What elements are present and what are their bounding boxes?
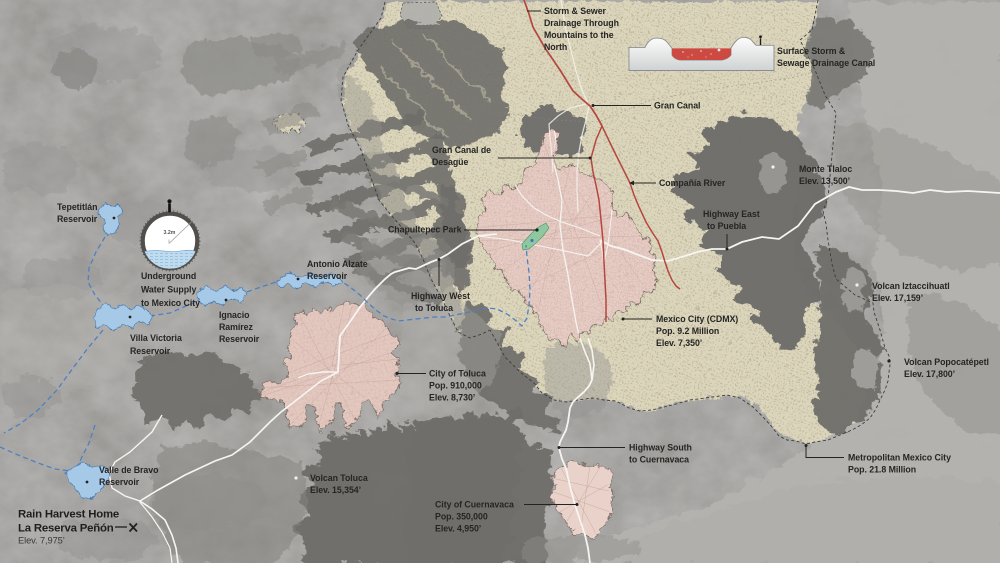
svg-text:Pop. 9.2 Million: Pop. 9.2 Million (656, 326, 719, 336)
svg-text:Reservoir: Reservoir (219, 334, 260, 344)
svg-text:Reservoir: Reservoir (57, 214, 98, 224)
svg-text:Gran Canal: Gran Canal (654, 101, 700, 111)
svg-text:Mountains to the: Mountains to the (544, 30, 614, 40)
svg-text:Elev. 8,730’: Elev. 8,730’ (429, 393, 475, 403)
svg-text:Pop. 910,000: Pop. 910,000 (429, 381, 482, 391)
svg-text:Storm & Sewer: Storm & Sewer (544, 6, 607, 16)
svg-text:Elev. 7,350’: Elev. 7,350’ (656, 338, 702, 348)
svg-text:Highway South: Highway South (629, 443, 692, 453)
svg-text:Elev. 15,354’: Elev. 15,354’ (310, 485, 361, 495)
svg-text:Highway East: Highway East (703, 209, 760, 219)
svg-text:Compañía River: Compañía River (659, 178, 726, 188)
svg-text:Volcan Iztaccihuatl: Volcan Iztaccihuatl (872, 281, 950, 291)
svg-text:Desagüe: Desagüe (432, 157, 468, 167)
svg-text:Reservoir: Reservoir (130, 346, 171, 356)
svg-text:Reservoir: Reservoir (307, 271, 348, 281)
svg-text:Pop. 21.8 Million: Pop. 21.8 Million (848, 465, 916, 475)
svg-text:La Reserva Peñón: La Reserva Peñón (18, 523, 114, 535)
svg-text:Underground: Underground (141, 271, 196, 281)
svg-text:Elev. 7,975’: Elev. 7,975’ (18, 536, 65, 546)
svg-text:Mexico City (CDMX): Mexico City (CDMX) (656, 314, 738, 324)
svg-text:Volcan Popocatépetl: Volcan Popocatépetl (904, 357, 989, 367)
svg-text:Monte Tlaloc: Monte Tlaloc (799, 164, 852, 174)
svg-text:to Puebla: to Puebla (707, 221, 746, 231)
svg-text:Metropolitan Mexico City: Metropolitan Mexico City (848, 453, 951, 463)
svg-text:North: North (544, 42, 567, 52)
svg-text:City of Toluca: City of Toluca (429, 369, 486, 379)
svg-text:to Toluca: to Toluca (415, 303, 453, 313)
svg-text:Antonio Alzate: Antonio Alzate (307, 259, 368, 269)
svg-text:Chapultepec Park: Chapultepec Park (388, 225, 462, 235)
svg-text:Ramírez: Ramírez (219, 322, 254, 332)
svg-text:Pop. 350,000: Pop. 350,000 (435, 512, 488, 522)
svg-text:Elev. 17,159’: Elev. 17,159’ (872, 293, 923, 303)
svg-text:to Mexico City: to Mexico City (141, 298, 200, 308)
svg-text:City of Cuernavaca: City of Cuernavaca (435, 500, 514, 510)
svg-text:Elev. 4,950’: Elev. 4,950’ (435, 524, 481, 534)
svg-text:Surface Storm &: Surface Storm & (777, 46, 846, 56)
svg-text:Elev. 13,500’: Elev. 13,500’ (799, 176, 850, 186)
svg-text:Reservoir: Reservoir (99, 477, 140, 487)
svg-text:Ignacio: Ignacio (219, 310, 250, 320)
svg-text:Water Supply: Water Supply (141, 285, 196, 295)
svg-text:Tepetitlán: Tepetitlán (57, 202, 97, 212)
svg-text:Drainage Through: Drainage Through (544, 18, 619, 28)
svg-text:3.2m: 3.2m (164, 230, 176, 236)
svg-text:Highway West: Highway West (411, 291, 470, 301)
svg-text:Valle de Bravo: Valle de Bravo (99, 465, 159, 475)
svg-text:Gran Canal de: Gran Canal de (432, 145, 491, 155)
svg-text:Elev. 17,800’: Elev. 17,800’ (904, 369, 955, 379)
svg-text:to Cuernavaca: to Cuernavaca (629, 455, 689, 465)
svg-text:Rain Harvest Home: Rain Harvest Home (18, 509, 119, 521)
svg-text:Sewage Drainage Canal: Sewage Drainage Canal (777, 58, 875, 68)
svg-text:Volcan Toluca: Volcan Toluca (310, 473, 368, 483)
svg-text:Villa Victoria: Villa Victoria (130, 333, 182, 343)
